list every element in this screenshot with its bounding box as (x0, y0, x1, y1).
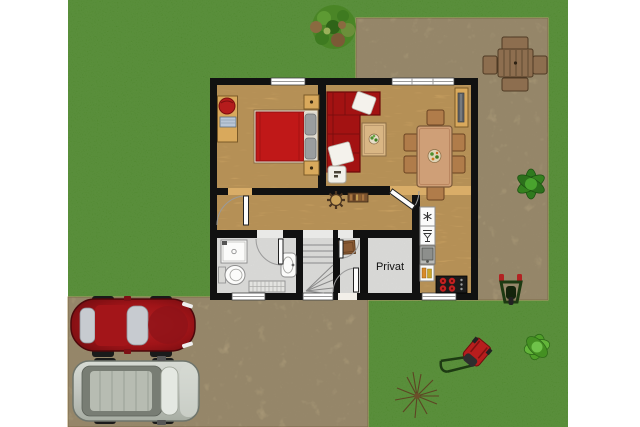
van-windshield (161, 367, 178, 415)
sun-wall-clock (327, 191, 345, 209)
house: Privat (210, 78, 478, 300)
car-mirror (124, 296, 131, 301)
desk-chair (219, 98, 235, 114)
toilet-tank (219, 267, 226, 283)
wheelbarrow-wheel (509, 297, 514, 305)
floor-plan-image: Privat (0, 0, 640, 427)
privat-room-label: Privat (376, 261, 404, 273)
dining-chair (451, 156, 465, 173)
pillow (305, 138, 316, 159)
pillow (305, 114, 316, 135)
patio-chair-top (502, 37, 528, 50)
bed-duvet (256, 112, 304, 161)
bedroom-door (244, 196, 249, 225)
patio-chair-left (483, 56, 497, 74)
dining-chair (404, 134, 418, 151)
dining-chair (427, 110, 444, 125)
car-mirror (124, 349, 131, 354)
car-windshield (127, 306, 148, 345)
car-roof (95, 305, 129, 346)
van-hood (180, 365, 197, 417)
shower-head (222, 241, 227, 245)
entrance-door (354, 268, 359, 292)
faucet (426, 260, 429, 263)
car-rear-window (80, 308, 95, 343)
floor-plan-canvas: Privat (0, 0, 640, 427)
patio-chair-bottom (502, 78, 528, 91)
entrance-opening (338, 293, 357, 300)
vestibule-door (339, 240, 343, 258)
dishwasher (420, 226, 435, 245)
ottoman (328, 166, 346, 183)
keyboard (220, 117, 236, 127)
dining-chair (451, 134, 465, 151)
van-mirror (157, 420, 166, 425)
dining-chair (404, 156, 418, 173)
red-car (71, 296, 195, 357)
dining-chair (427, 186, 444, 200)
gray-van (73, 356, 199, 425)
bathroom-door (279, 239, 284, 264)
patio-chair-right (533, 56, 547, 74)
van-mirror (157, 356, 166, 361)
